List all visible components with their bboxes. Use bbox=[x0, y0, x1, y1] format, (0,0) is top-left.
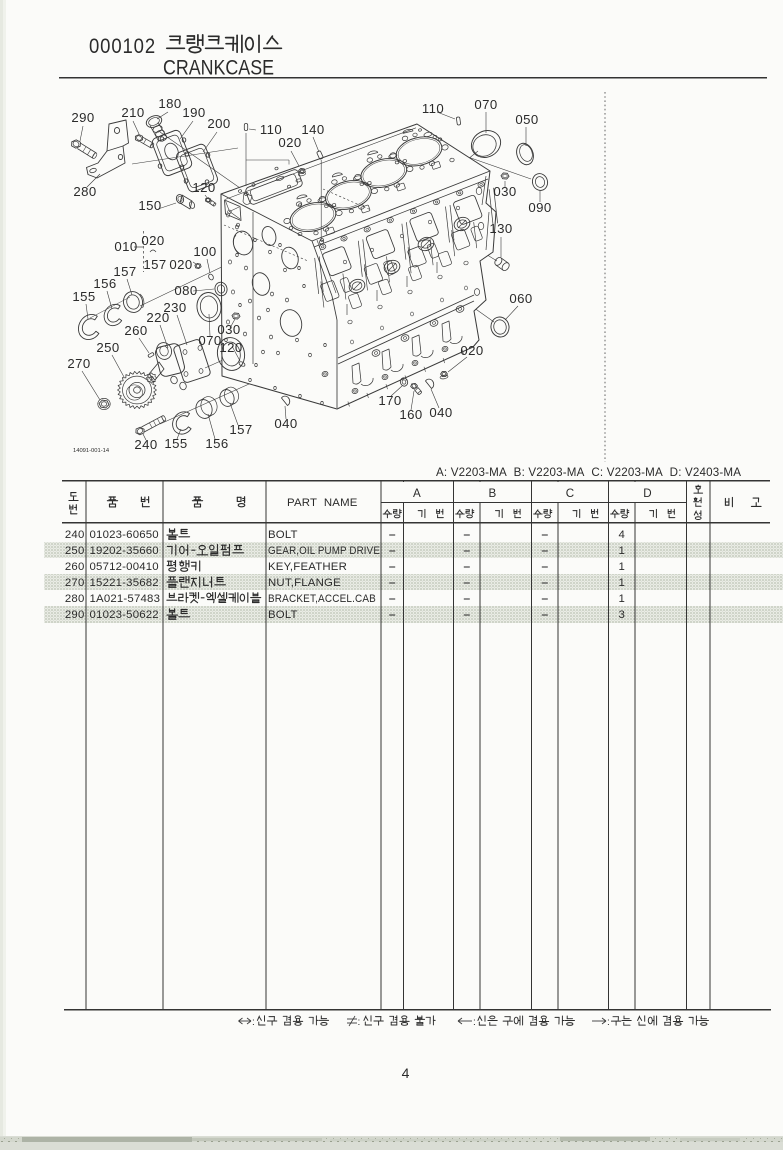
svg-text:A: A bbox=[413, 487, 421, 500]
svg-text:200: 200 bbox=[207, 116, 230, 131]
svg-text:155: 155 bbox=[164, 436, 187, 451]
svg-text:250: 250 bbox=[65, 545, 85, 557]
svg-text:BOLT: BOLT bbox=[268, 609, 298, 621]
svg-text:120: 120 bbox=[219, 340, 242, 355]
svg-text:157: 157 bbox=[229, 422, 252, 437]
svg-text:020: 020 bbox=[169, 257, 192, 272]
svg-text:1A021-57483: 1A021-57483 bbox=[90, 593, 161, 605]
svg-text:1: 1 bbox=[619, 577, 626, 589]
svg-text:020: 020 bbox=[141, 233, 164, 248]
svg-text:120: 120 bbox=[192, 180, 215, 195]
svg-text:01023-60650: 01023-60650 bbox=[90, 529, 159, 541]
svg-text:140: 140 bbox=[301, 122, 324, 137]
svg-text:260: 260 bbox=[65, 561, 85, 573]
svg-text:CRANKCASE: CRANKCASE bbox=[163, 56, 274, 80]
svg-text:020: 020 bbox=[460, 343, 483, 358]
svg-text:NUT,FLANGE: NUT,FLANGE bbox=[268, 577, 341, 589]
svg-text:14091-001-14: 14091-001-14 bbox=[73, 448, 110, 454]
svg-text:290: 290 bbox=[71, 110, 94, 125]
svg-text:180: 180 bbox=[158, 96, 181, 111]
svg-text:240: 240 bbox=[65, 529, 85, 541]
svg-text:260: 260 bbox=[124, 323, 147, 338]
svg-text:BRACKET,ACCEL.CAB: BRACKET,ACCEL.CAB bbox=[268, 593, 376, 605]
svg-text:240: 240 bbox=[134, 437, 157, 452]
svg-text:030: 030 bbox=[493, 184, 516, 199]
svg-text:080: 080 bbox=[174, 283, 197, 298]
svg-text:1: 1 bbox=[619, 561, 626, 573]
svg-text:4: 4 bbox=[402, 1065, 410, 1081]
svg-text:230: 230 bbox=[163, 300, 186, 315]
svg-text:290: 290 bbox=[65, 609, 85, 621]
svg-text::: : bbox=[358, 1017, 361, 1028]
svg-text:D: D bbox=[643, 487, 652, 500]
svg-text:010: 010 bbox=[114, 239, 137, 254]
svg-text:250: 250 bbox=[96, 340, 119, 355]
svg-text:05712-00410: 05712-00410 bbox=[90, 561, 159, 573]
svg-text:150: 150 bbox=[138, 198, 161, 213]
svg-text:060: 060 bbox=[509, 291, 532, 306]
svg-text:030: 030 bbox=[217, 322, 240, 337]
svg-text:19202-35660: 19202-35660 bbox=[90, 545, 159, 557]
svg-text::: : bbox=[607, 1017, 610, 1028]
svg-text:1: 1 bbox=[619, 545, 626, 557]
svg-text:210: 210 bbox=[121, 105, 144, 120]
svg-text:156: 156 bbox=[205, 436, 228, 451]
svg-text:270: 270 bbox=[65, 577, 85, 589]
svg-text:100: 100 bbox=[193, 244, 216, 259]
svg-text:170: 170 bbox=[378, 393, 401, 408]
svg-text:PART NAME: PART NAME bbox=[287, 497, 358, 509]
svg-text:070: 070 bbox=[474, 97, 497, 112]
svg-text:110: 110 bbox=[422, 101, 444, 116]
svg-text::: : bbox=[252, 1017, 255, 1028]
svg-text:157: 157 bbox=[113, 264, 136, 279]
svg-text:280: 280 bbox=[65, 593, 85, 605]
svg-text:B: B bbox=[489, 487, 497, 500]
svg-text:C: C bbox=[566, 487, 575, 500]
svg-text:156: 156 bbox=[93, 276, 116, 291]
svg-text:157: 157 bbox=[143, 257, 166, 272]
svg-text:280: 280 bbox=[73, 184, 96, 199]
svg-text:000102: 000102 bbox=[89, 35, 156, 58]
svg-text:040: 040 bbox=[429, 405, 452, 420]
svg-text:A: V2203-MA B: V2203-MA C: V: A: V2203-MA B: V2203-MA C: V2203-MA D: V… bbox=[436, 466, 741, 479]
svg-text:040: 040 bbox=[274, 416, 297, 431]
svg-text:GEAR,OIL PUMP DRIVE: GEAR,OIL PUMP DRIVE bbox=[268, 545, 380, 557]
svg-text:020: 020 bbox=[278, 135, 301, 150]
svg-text:1: 1 bbox=[619, 593, 626, 605]
svg-text:050: 050 bbox=[515, 112, 538, 127]
svg-text:130: 130 bbox=[489, 221, 512, 236]
svg-text:15221-35682: 15221-35682 bbox=[90, 577, 159, 589]
svg-text:KEY,FEATHER: KEY,FEATHER bbox=[268, 561, 347, 573]
svg-text:01023-50622: 01023-50622 bbox=[90, 609, 159, 621]
svg-text:BOLT: BOLT bbox=[268, 529, 298, 541]
svg-text::: : bbox=[473, 1017, 476, 1028]
svg-text:3: 3 bbox=[619, 609, 626, 621]
svg-text:155: 155 bbox=[72, 289, 95, 304]
svg-text:4: 4 bbox=[619, 529, 626, 541]
svg-text:090: 090 bbox=[528, 200, 551, 215]
svg-text:270: 270 bbox=[67, 356, 90, 371]
svg-text:190: 190 bbox=[182, 105, 205, 120]
svg-text:160: 160 bbox=[399, 407, 422, 422]
